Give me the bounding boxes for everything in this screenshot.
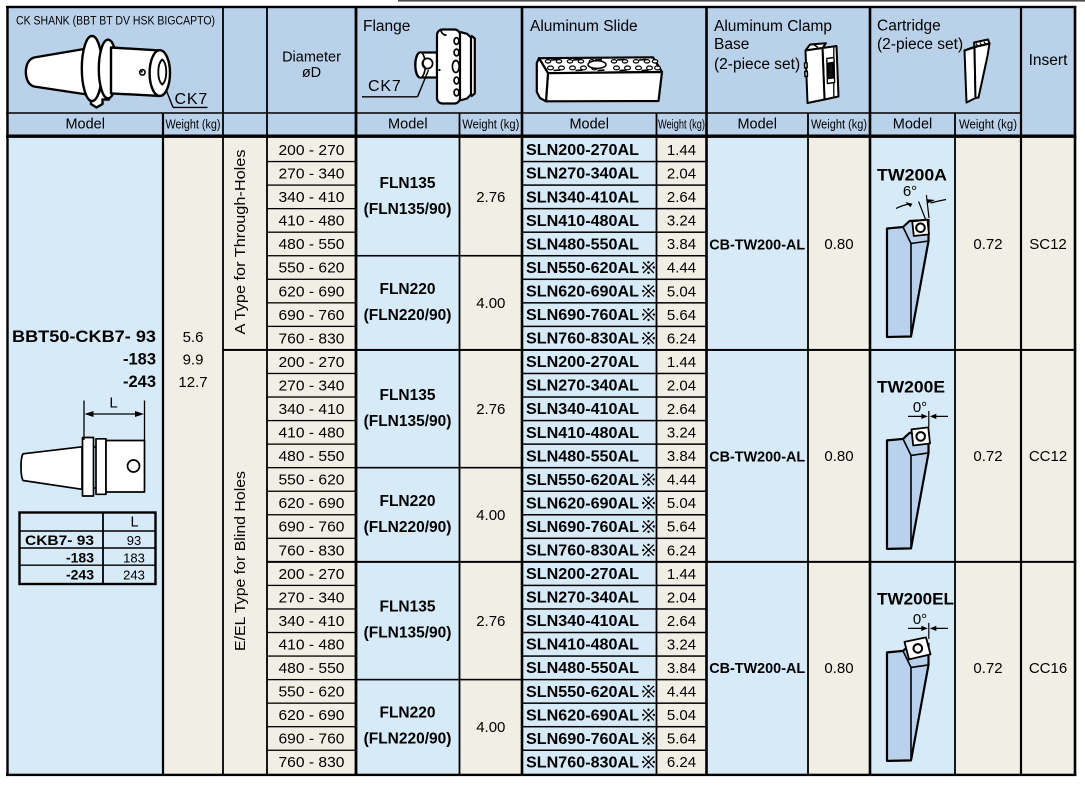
svg-text:Weight (kg): Weight (kg) bbox=[658, 118, 705, 132]
svg-text:SLN760-830AL: SLN760-830AL bbox=[526, 754, 639, 771]
svg-text:5.64: 5.64 bbox=[667, 307, 696, 324]
svg-text:690 - 760: 690 - 760 bbox=[279, 731, 345, 748]
svg-text:Diameter: Diameter bbox=[282, 50, 341, 66]
svg-text:SLN550-620AL: SLN550-620AL bbox=[526, 260, 639, 277]
svg-text:3.84: 3.84 bbox=[667, 236, 696, 253]
svg-text:270 - 340: 270 - 340 bbox=[279, 378, 345, 395]
svg-text:620 - 690: 620 - 690 bbox=[279, 283, 345, 300]
svg-text:410 - 480: 410 - 480 bbox=[279, 637, 345, 654]
svg-text:200 - 270: 200 - 270 bbox=[279, 566, 345, 583]
svg-text:12.7: 12.7 bbox=[178, 374, 207, 391]
svg-text:SLN620-690AL: SLN620-690AL bbox=[526, 707, 639, 724]
svg-text:BBT50-CKB7- 93: BBT50-CKB7- 93 bbox=[12, 328, 156, 346]
svg-text:SLN340-410AL: SLN340-410AL bbox=[526, 189, 639, 206]
svg-text:6.24: 6.24 bbox=[667, 542, 696, 559]
svg-text:SLN200-270AL: SLN200-270AL bbox=[526, 142, 639, 159]
svg-text:(FLN135/90): (FLN135/90) bbox=[364, 625, 452, 642]
svg-text:(FLN220/90): (FLN220/90) bbox=[364, 731, 452, 748]
svg-text:SLN410-480AL: SLN410-480AL bbox=[526, 637, 639, 654]
svg-text:SLN200-270AL: SLN200-270AL bbox=[526, 566, 639, 583]
svg-text:410 - 480: 410 - 480 bbox=[279, 425, 345, 442]
svg-text:Weight (kg): Weight (kg) bbox=[959, 118, 1017, 132]
svg-text:93: 93 bbox=[127, 533, 141, 548]
svg-text:2.76: 2.76 bbox=[476, 189, 505, 206]
svg-text:Model: Model bbox=[893, 117, 933, 133]
svg-text:SLN480-550AL: SLN480-550AL bbox=[526, 448, 639, 465]
svg-text:-183: -183 bbox=[123, 351, 156, 369]
svg-text:550 - 620: 550 - 620 bbox=[279, 260, 345, 277]
svg-text:Base: Base bbox=[714, 36, 749, 53]
svg-text:3.24: 3.24 bbox=[667, 213, 696, 230]
svg-text:4.44: 4.44 bbox=[667, 472, 696, 489]
svg-text:2.64: 2.64 bbox=[667, 401, 696, 418]
svg-text:3.84: 3.84 bbox=[667, 448, 696, 465]
svg-text:CKB7- 93: CKB7- 93 bbox=[25, 532, 94, 548]
svg-text:183: 183 bbox=[123, 550, 145, 565]
svg-text:SLN340-410AL: SLN340-410AL bbox=[526, 401, 639, 418]
svg-text:410 - 480: 410 - 480 bbox=[279, 213, 345, 230]
svg-text:Aluminum Slide: Aluminum Slide bbox=[530, 18, 638, 35]
svg-text:340 - 410: 340 - 410 bbox=[279, 189, 345, 206]
svg-text:Weight (kg): Weight (kg) bbox=[462, 118, 519, 132]
svg-text:2.04: 2.04 bbox=[667, 166, 696, 183]
svg-text:3.24: 3.24 bbox=[667, 425, 696, 442]
svg-text:A Type for Through-Holes: A Type for Through-Holes bbox=[232, 150, 249, 335]
svg-text:690 - 760: 690 - 760 bbox=[279, 519, 345, 536]
svg-text:Weight (kg): Weight (kg) bbox=[166, 118, 221, 132]
svg-text:3.24: 3.24 bbox=[667, 637, 696, 654]
svg-text:SLN620-690AL: SLN620-690AL bbox=[526, 495, 639, 512]
svg-text:SLN550-620AL: SLN550-620AL bbox=[526, 684, 639, 701]
svg-text:200 - 270: 200 - 270 bbox=[279, 354, 345, 371]
svg-text:480 - 550: 480 - 550 bbox=[279, 236, 345, 253]
svg-text:5.64: 5.64 bbox=[667, 519, 696, 536]
svg-text:Insert: Insert bbox=[1029, 52, 1068, 69]
svg-text:340 - 410: 340 - 410 bbox=[279, 613, 345, 630]
svg-text:SLN410-480AL: SLN410-480AL bbox=[526, 213, 639, 230]
svg-text:2.64: 2.64 bbox=[667, 613, 696, 630]
svg-text:(FLN220/90): (FLN220/90) bbox=[364, 307, 452, 324]
svg-text:2.64: 2.64 bbox=[667, 189, 696, 206]
svg-text:480 - 550: 480 - 550 bbox=[279, 660, 345, 677]
svg-text:FLN135: FLN135 bbox=[380, 387, 436, 404]
svg-text:FLN220: FLN220 bbox=[380, 493, 436, 510]
svg-text:1.44: 1.44 bbox=[667, 142, 696, 159]
svg-text:TW200EL: TW200EL bbox=[877, 589, 954, 608]
svg-text:FLN135: FLN135 bbox=[380, 175, 436, 192]
svg-text:FLN135: FLN135 bbox=[380, 599, 436, 616]
svg-text:550 - 620: 550 - 620 bbox=[279, 684, 345, 701]
svg-text:SLN480-550AL: SLN480-550AL bbox=[526, 660, 639, 677]
svg-text:2.04: 2.04 bbox=[667, 589, 696, 606]
svg-text:Model: Model bbox=[388, 117, 428, 133]
svg-text:CK7: CK7 bbox=[368, 78, 402, 95]
svg-text:2.76: 2.76 bbox=[476, 613, 505, 630]
svg-text:SLN760-830AL: SLN760-830AL bbox=[526, 331, 639, 348]
svg-text:0°: 0° bbox=[913, 399, 927, 416]
svg-text:CC12: CC12 bbox=[1029, 448, 1067, 465]
svg-text:SLN760-830AL: SLN760-830AL bbox=[526, 543, 639, 560]
svg-text:0.72: 0.72 bbox=[973, 448, 1002, 465]
svg-text:5.64: 5.64 bbox=[667, 731, 696, 748]
svg-text:CK SHANK (BBT BT DV HSK BIGCAP: CK SHANK (BBT BT DV HSK BIGCAPTO) bbox=[16, 14, 215, 28]
svg-text:CB-TW200-AL: CB-TW200-AL bbox=[709, 448, 805, 465]
svg-text:1.44: 1.44 bbox=[667, 354, 696, 371]
svg-text:SC12: SC12 bbox=[1029, 236, 1067, 253]
svg-text:SLN550-620AL: SLN550-620AL bbox=[526, 472, 639, 489]
svg-text:6°: 6° bbox=[903, 183, 917, 200]
svg-text:4.44: 4.44 bbox=[667, 684, 696, 701]
svg-text:200 - 270: 200 - 270 bbox=[279, 142, 345, 159]
svg-text:Weight (kg): Weight (kg) bbox=[811, 118, 867, 132]
svg-text:SLN270-340AL: SLN270-340AL bbox=[526, 378, 639, 395]
svg-text:Model: Model bbox=[569, 117, 609, 133]
svg-text:480 - 550: 480 - 550 bbox=[279, 448, 345, 465]
svg-text:(FLN220/90): (FLN220/90) bbox=[364, 519, 452, 536]
svg-text:(FLN135/90): (FLN135/90) bbox=[364, 201, 452, 218]
svg-text:SLN480-550AL: SLN480-550AL bbox=[526, 236, 639, 253]
svg-text:6.24: 6.24 bbox=[667, 754, 696, 771]
svg-text:0.80: 0.80 bbox=[824, 660, 853, 677]
svg-text:6.24: 6.24 bbox=[667, 330, 696, 347]
svg-text:760 - 830: 760 - 830 bbox=[279, 330, 345, 347]
svg-text:9.9: 9.9 bbox=[183, 352, 204, 369]
svg-text:Flange: Flange bbox=[363, 18, 410, 35]
svg-text:Model: Model bbox=[65, 117, 105, 133]
svg-text:270 - 340: 270 - 340 bbox=[279, 166, 345, 183]
svg-text:4.44: 4.44 bbox=[667, 260, 696, 277]
svg-text:620 - 690: 620 - 690 bbox=[279, 495, 345, 512]
svg-text:øD: øD bbox=[302, 65, 321, 81]
svg-text:Aluminum Clamp: Aluminum Clamp bbox=[714, 18, 832, 35]
svg-text:SLN270-340AL: SLN270-340AL bbox=[526, 166, 639, 183]
svg-text:690 - 760: 690 - 760 bbox=[279, 307, 345, 324]
svg-text:4.00: 4.00 bbox=[476, 507, 505, 524]
svg-text:CK7: CK7 bbox=[175, 91, 209, 108]
svg-text:2.04: 2.04 bbox=[667, 378, 696, 395]
svg-text:CB-TW200-AL: CB-TW200-AL bbox=[709, 660, 805, 677]
svg-text:CB-TW200-AL: CB-TW200-AL bbox=[709, 236, 805, 253]
svg-text:SLN690-760AL: SLN690-760AL bbox=[526, 519, 639, 536]
svg-text:4.00: 4.00 bbox=[476, 295, 505, 312]
svg-text:(FLN135/90): (FLN135/90) bbox=[364, 413, 452, 430]
svg-text:243: 243 bbox=[123, 568, 145, 583]
svg-text:340 - 410: 340 - 410 bbox=[279, 401, 345, 418]
svg-text:5.04: 5.04 bbox=[667, 495, 696, 512]
svg-text:SLN410-480AL: SLN410-480AL bbox=[526, 425, 639, 442]
svg-text:-243: -243 bbox=[66, 567, 94, 583]
svg-text:0.72: 0.72 bbox=[973, 236, 1002, 253]
svg-text:Cartridge: Cartridge bbox=[877, 18, 941, 35]
svg-text:5.04: 5.04 bbox=[667, 707, 696, 724]
svg-text:SLN620-690AL: SLN620-690AL bbox=[526, 284, 639, 301]
svg-text:SLN340-410AL: SLN340-410AL bbox=[526, 613, 639, 630]
svg-text:SLN200-270AL: SLN200-270AL bbox=[526, 354, 639, 371]
svg-text:-243: -243 bbox=[123, 373, 156, 391]
svg-text:0.80: 0.80 bbox=[824, 448, 853, 465]
svg-text:E/EL Type for Blind Holes: E/EL Type for Blind Holes bbox=[232, 471, 249, 651]
svg-text:4.00: 4.00 bbox=[476, 719, 505, 736]
svg-text:CC16: CC16 bbox=[1029, 660, 1067, 677]
svg-text:760 - 830: 760 - 830 bbox=[279, 754, 345, 771]
svg-text:SLN690-760AL: SLN690-760AL bbox=[526, 307, 639, 324]
svg-text:FLN220: FLN220 bbox=[380, 281, 436, 298]
svg-text:L: L bbox=[109, 395, 117, 412]
svg-text:2.76: 2.76 bbox=[476, 401, 505, 418]
svg-text:1.44: 1.44 bbox=[667, 566, 696, 583]
svg-text:5.6: 5.6 bbox=[183, 329, 204, 346]
svg-text:SLN270-340AL: SLN270-340AL bbox=[526, 590, 639, 607]
svg-text:TW200A: TW200A bbox=[877, 166, 947, 185]
svg-text:Model: Model bbox=[737, 117, 777, 133]
svg-text:(2-piece set): (2-piece set) bbox=[714, 56, 800, 73]
svg-text:FLN220: FLN220 bbox=[380, 705, 436, 722]
svg-text:0°: 0° bbox=[913, 611, 927, 628]
svg-text:0.80: 0.80 bbox=[824, 236, 853, 253]
svg-text:L: L bbox=[130, 515, 138, 531]
svg-text:TW200E: TW200E bbox=[877, 377, 945, 396]
svg-text:-183: -183 bbox=[66, 549, 94, 565]
svg-text:(2-piece set): (2-piece set) bbox=[877, 36, 963, 53]
svg-text:5.04: 5.04 bbox=[667, 283, 696, 300]
svg-text:620 - 690: 620 - 690 bbox=[279, 707, 345, 724]
svg-text:550 - 620: 550 - 620 bbox=[279, 472, 345, 489]
svg-text:SLN690-760AL: SLN690-760AL bbox=[526, 731, 639, 748]
svg-text:760 - 830: 760 - 830 bbox=[279, 542, 345, 559]
svg-text:3.84: 3.84 bbox=[667, 660, 696, 677]
svg-text:270 - 340: 270 - 340 bbox=[279, 589, 345, 606]
svg-text:0.72: 0.72 bbox=[973, 660, 1002, 677]
